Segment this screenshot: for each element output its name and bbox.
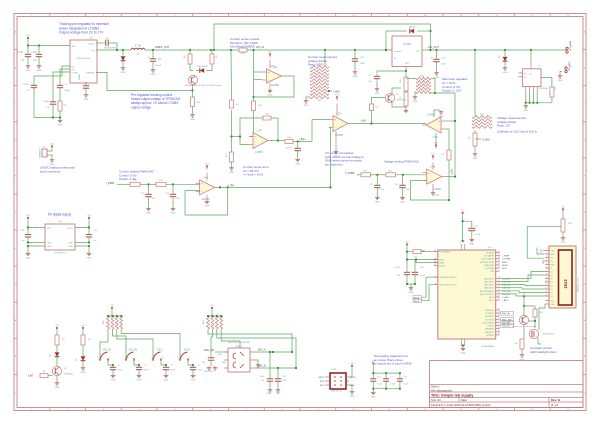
svg-text:GND: GND	[304, 105, 309, 107]
svg-text:set maximum: set maximum	[325, 162, 343, 166]
svg-text:1N5822/3W: 1N5822/3W	[104, 47, 116, 49]
svg-text:LM358: LM358	[271, 84, 279, 87]
svg-text:LED+: LED+	[551, 301, 556, 303]
svg-text:U7A: U7A	[433, 136, 438, 139]
svg-text:SMPS_OUT: SMPS_OUT	[155, 45, 170, 49]
svg-text:V_ADC: V_ADC	[502, 296, 510, 299]
svg-text:SB540: SB540	[409, 27, 416, 29]
svg-text:GND: GND	[84, 99, 89, 101]
svg-text:GND: GND	[503, 72, 508, 74]
svg-text:(ADC3)PC3: (ADC3)PC3	[484, 287, 494, 290]
svg-text:to supply pin of each LM358: to supply pin of each LM358	[374, 362, 412, 366]
svg-text:RST: RST	[320, 385, 325, 387]
svg-text:GND: GND	[121, 72, 126, 74]
svg-text:(ICP)PB?: (ICP)PB?	[486, 335, 494, 337]
svg-text:14: 14	[498, 257, 500, 259]
svg-text:2: 2	[190, 357, 191, 359]
svg-text:+: +	[334, 118, 336, 122]
svg-text:Voltage setting PWM DAC: Voltage setting PWM DAC	[384, 160, 420, 164]
svg-text:1: 1	[546, 249, 547, 251]
svg-text:4: 4	[546, 260, 547, 262]
svg-text:GND: GND	[520, 359, 525, 361]
svg-text:+: +	[148, 55, 150, 59]
svg-text:Rev: B: Rev: B	[551, 398, 560, 402]
svg-text:Size: A3: Size: A3	[431, 398, 441, 402]
svg-text:GND: GND	[47, 243, 52, 245]
svg-text:(MISO)PB4: (MISO)PB4	[485, 265, 495, 267]
svg-text:10uF: 10uF	[441, 64, 447, 66]
svg-text:I_Mon: I_Mon	[299, 139, 306, 141]
svg-text:GND: GND	[268, 95, 273, 97]
svg-text:5: 5	[546, 263, 547, 265]
svg-text:Id: 1/1: Id: 1/1	[551, 403, 559, 407]
svg-text:MISO: MISO	[502, 262, 508, 264]
svg-text:20: 20	[434, 261, 436, 263]
svg-text:COMP: COMP	[72, 73, 79, 75]
svg-text:12: 12	[545, 288, 547, 290]
svg-text:ENC_SW: ENC_SW	[204, 350, 215, 352]
svg-text:Ratio: 1/5: Ratio: 1/5	[497, 124, 510, 128]
svg-text:U7A: U7A	[273, 67, 278, 70]
svg-text:LIN_OUT: LIN_OUT	[428, 45, 439, 49]
svg-text:8: 8	[435, 283, 436, 285]
svg-text:10nF: 10nF	[217, 354, 222, 356]
svg-text:31: 31	[498, 311, 500, 313]
svg-text:GND: GND	[558, 80, 563, 82]
svg-text:GND: GND	[371, 397, 376, 399]
svg-text:GND: GND	[37, 70, 42, 72]
svg-text:tracking 2N3904 with SET of LT: tracking 2N3904 with SET of LT3083 trans…	[184, 84, 221, 87]
svg-text:VSENSE: VSENSE	[86, 73, 95, 75]
svg-text:D0: D0	[551, 272, 553, 274]
svg-text:0.1uF: 0.1uF	[395, 267, 401, 269]
svg-text:1: 1	[178, 357, 179, 359]
svg-text:10uF: 10uF	[259, 376, 264, 378]
svg-text:7: 7	[435, 275, 436, 277]
svg-text:27: 27	[498, 289, 500, 291]
svg-text:2: 2	[110, 357, 111, 359]
svg-text:GND: GND	[295, 164, 300, 166]
svg-text:+5V: +5V	[350, 363, 354, 365]
svg-text:GND: GND	[205, 206, 210, 208]
svg-text:+5V: +5V	[81, 325, 85, 327]
svg-text:16x2: 16x2	[563, 279, 568, 289]
svg-text:9: 9	[498, 324, 499, 326]
svg-text:+: +	[438, 119, 440, 123]
svg-text:GND: GND	[469, 244, 474, 246]
svg-text:SW_DS: SW_DS	[502, 326, 510, 328]
svg-text:GND: GND	[276, 393, 281, 395]
svg-text:(RXD)PD0: (RXD)PD0	[485, 310, 494, 312]
svg-text:D3: D3	[551, 282, 553, 284]
svg-text:9: 9	[546, 277, 547, 279]
svg-text:9: 9	[498, 270, 499, 272]
svg-text:+5V: +5V	[55, 325, 59, 327]
svg-text:GND: GND	[111, 380, 116, 382]
svg-text:2N2222A: 2N2222A	[397, 99, 406, 102]
svg-text:(TXD)PD1: (TXD)PD1	[485, 313, 494, 315]
svg-text:GND: GND	[350, 396, 355, 398]
svg-text:+5V: +5V	[561, 207, 565, 209]
svg-text:GND: GND	[461, 353, 466, 355]
svg-text:4.7uF: 4.7uF	[31, 52, 37, 54]
svg-text:-: -	[439, 127, 440, 131]
svg-text:10nF: 10nF	[118, 370, 123, 372]
svg-text:+: +	[431, 56, 433, 60]
svg-text:VCC: VCC	[26, 215, 31, 217]
svg-text:28: 28	[498, 292, 500, 294]
svg-text:output voltage: output voltage	[131, 105, 151, 109]
svg-text:GND: GND	[190, 119, 195, 121]
svg-text:12: 12	[498, 251, 500, 253]
svg-text:0.1uF: 0.1uF	[377, 384, 383, 386]
svg-text:15: 15	[498, 260, 500, 262]
svg-text:GND: GND	[353, 76, 358, 78]
svg-text:+: +	[268, 70, 270, 74]
svg-text:AVCC: AVCC	[439, 259, 445, 262]
svg-text:11: 11	[498, 330, 500, 332]
svg-text:EN: EN	[72, 67, 75, 69]
svg-text:VCC: VCC	[431, 154, 436, 156]
svg-text:I_Set: I_Set	[228, 184, 234, 187]
svg-text:VIN: VIN	[47, 228, 51, 230]
svg-text:GND: GND	[81, 372, 86, 374]
svg-text:V_PWM: V_PWM	[345, 172, 354, 175]
svg-text:ILIM: ILIM	[361, 120, 366, 123]
svg-text:150pF: 150pF	[64, 90, 71, 92]
svg-text:SW_MS: SW_MS	[129, 350, 138, 352]
svg-text:GND: GND	[561, 242, 566, 244]
svg-text:LED backlight driver: LED backlight driver	[530, 350, 557, 354]
svg-text:LM358: LM358	[433, 188, 441, 191]
svg-text:GND: GND	[87, 258, 92, 260]
svg-text:6.2nF: 6.2nF	[23, 84, 29, 86]
svg-text:+: +	[428, 171, 430, 175]
svg-text:D1: D1	[551, 275, 553, 277]
svg-text:(ADC1)PC1: (ADC1)PC1	[484, 281, 494, 284]
svg-text:Calibrate to 2.5V out at 15V i: Calibrate to 2.5V out at 15V in	[497, 130, 537, 134]
svg-text:+5V: +5V	[371, 361, 375, 363]
svg-text:File: elbsupply.sch: File: elbsupply.sch	[431, 388, 453, 392]
svg-text:POWER_IN: POWER_IN	[40, 147, 42, 158]
svg-text:GND: GND	[164, 380, 169, 382]
svg-text:SW_R: SW_R	[184, 350, 191, 352]
svg-text:Output: 0..15V: Output: 0..15V	[442, 89, 461, 93]
svg-text:GND: GND	[137, 380, 142, 382]
svg-text:(ADC4/SDA)PC4: (ADC4/SDA)PC4	[480, 290, 494, 293]
svg-text:V_ADC: V_ADC	[482, 139, 490, 142]
svg-text:1: 1	[498, 318, 499, 320]
svg-text:2: 2	[546, 253, 547, 255]
svg-text:+5V: +5V	[461, 210, 465, 212]
svg-text:17: 17	[498, 266, 500, 268]
svg-text:U7B: U7B	[257, 130, 262, 133]
svg-text:OUT_PWR: OUT_PWR	[570, 40, 572, 51]
svg-text:10nF: 10nF	[144, 370, 149, 372]
svg-text:LM358: LM358	[202, 198, 210, 201]
svg-text:26: 26	[498, 286, 500, 288]
svg-text:22nF: 22nF	[44, 101, 50, 103]
svg-text:LT3083: LT3083	[403, 43, 412, 46]
svg-text:1: 1	[98, 357, 99, 359]
svg-text:PB?: PB?	[491, 271, 495, 273]
svg-text:DISPLAY_16x2: DISPLAY_16x2	[577, 277, 580, 292]
svg-text:SCK: SCK	[502, 268, 507, 270]
svg-text:SW_L: SW_L	[157, 350, 164, 352]
svg-text:10: 10	[545, 281, 547, 283]
svg-text:GND: GND	[69, 246, 74, 248]
svg-text:4.7uH: 4.7uH	[135, 46, 141, 48]
svg-text:GND: GND	[26, 258, 31, 260]
svg-text:AREF: AREF	[439, 262, 445, 265]
svg-text:22: 22	[498, 298, 500, 300]
svg-text:-: -	[428, 179, 429, 183]
svg-text:I_Set: I_Set	[451, 169, 454, 175]
svg-text:10nF: 10nF	[198, 370, 203, 372]
svg-text:0.1uF: 0.1uF	[404, 384, 410, 386]
svg-text:GND: GND	[523, 110, 528, 112]
svg-text:-: -	[201, 190, 202, 194]
svg-text:ENC_A: ENC_A	[502, 312, 510, 315]
svg-text:-: -	[268, 78, 269, 82]
svg-text:(XCK/T0)PD4: (XCK/T0)PD4	[483, 322, 495, 324]
svg-text:4.7uF: 4.7uF	[17, 52, 23, 54]
svg-text:-: -	[335, 126, 336, 130]
svg-text:GND: GND	[47, 246, 52, 248]
svg-text:PB6(XTAL1/TOSC1): PB6(XTAL1/TOSC1)	[439, 276, 457, 279]
svg-text:+: +	[201, 182, 203, 186]
svg-text:GND: GND	[375, 202, 380, 204]
svg-text:I_ADC: I_ADC	[333, 91, 341, 94]
svg-text:GND: GND	[439, 116, 444, 118]
svg-text:PC6(RESET): PC6(RESET)	[439, 252, 451, 254]
svg-text:GND: GND	[400, 202, 405, 204]
svg-text:AGND: AGND	[439, 265, 445, 268]
svg-text:GND: GND	[435, 195, 440, 197]
svg-text:I_PWM: I_PWM	[502, 256, 510, 258]
svg-text:+5V: +5V	[522, 294, 526, 296]
svg-text:220uF: 220uF	[155, 65, 162, 67]
svg-text:=> Vout = 1V/A: => Vout = 1V/A	[243, 173, 263, 177]
svg-text:G: G	[15, 248, 17, 250]
svg-text:SW_MS: SW_MS	[502, 322, 511, 324]
svg-text:+5V: +5V	[210, 305, 214, 307]
svg-text:input connector: input connector	[40, 169, 61, 173]
svg-text:GND: GND	[229, 172, 234, 174]
svg-text:LM35DA: LM35DA	[539, 87, 548, 90]
svg-text:R/W: R/W	[551, 265, 555, 267]
svg-text:(MOSI/OC2)PB3: (MOSI/OC2)PB3	[480, 262, 494, 264]
svg-text:PB7(XTAL2/TOSC2): PB7(XTAL2/TOSC2)	[439, 284, 457, 287]
svg-text:(ADC5/SCL)PC5: (ADC5/SCL)PC5	[480, 293, 494, 296]
svg-text:VCC: VCC	[50, 144, 55, 146]
svg-text:TPS54331dda: TPS54331dda	[76, 58, 91, 60]
svg-text:SW_DS: SW_DS	[103, 350, 112, 352]
svg-text:GND: GND	[26, 70, 31, 72]
svg-text:VCC: VCC	[26, 35, 31, 37]
svg-text:(ICP)PB0: (ICP)PB0	[486, 253, 494, 255]
svg-text:GND: GND	[55, 387, 60, 389]
svg-text:IRLML6402: IRLML6402	[543, 334, 555, 336]
svg-text:+: +	[254, 135, 256, 139]
svg-text:D6: D6	[551, 293, 553, 295]
svg-text:D7: D7	[551, 296, 553, 298]
svg-text:VCC: VCC	[335, 95, 340, 97]
svg-text:29: 29	[434, 250, 436, 252]
svg-text:ILIM: ILIM	[28, 375, 33, 378]
svg-text:A06-ISP-6: A06-ISP-6	[331, 390, 342, 393]
svg-text:6: 6	[546, 267, 547, 269]
svg-text:-: -	[255, 143, 256, 147]
svg-text:U4A: U4A	[203, 176, 208, 179]
svg-text:2: 2	[498, 321, 499, 323]
svg-text:GND: GND	[413, 101, 418, 103]
svg-text:MOSI: MOSI	[502, 265, 508, 267]
svg-text:Output voltage from 2V to 17V: Output voltage from 2V to 17V	[59, 31, 104, 35]
svg-text:Sheet: /: Sheet: /	[431, 385, 440, 389]
svg-text:PWRD: PWRD	[79, 73, 81, 80]
svg-text:OUT_SNS: OUT_SNS	[569, 61, 571, 71]
svg-text:GND: GND	[58, 125, 63, 127]
svg-text:(SS/OC1B)PB2: (SS/OC1B)PB2	[481, 259, 494, 261]
svg-text:(AIN1)PD7: (AIN1)PD7	[485, 331, 494, 334]
svg-text:21: 21	[434, 264, 436, 266]
svg-text:(SCK)PB5: (SCK)PB5	[485, 268, 494, 270]
svg-text:ATMEGA8-A: ATMEGA8-A	[481, 345, 494, 348]
svg-text:GND GND: GND GND	[203, 371, 213, 373]
svg-text:+5V: +5V	[110, 305, 114, 307]
svg-text:(INT0)PD2: (INT0)PD2	[485, 316, 494, 318]
svg-text:TS-78L05CS: TS-78L05CS	[54, 253, 67, 255]
svg-text:Vcontrol: Vcontrol	[394, 50, 402, 53]
svg-text:LM358: LM358	[255, 151, 263, 154]
svg-text:23: 23	[498, 277, 500, 279]
svg-text:ENC_SW: ENC_SW	[502, 319, 512, 321]
svg-text:SCK: SCK	[320, 381, 325, 383]
svg-text:7: 7	[546, 270, 547, 272]
svg-text:11: 11	[545, 284, 547, 286]
svg-text:10nF: 10nF	[171, 370, 176, 372]
svg-text:(T1)PD5: (T1)PD5	[487, 326, 494, 328]
svg-text:PH: PH	[92, 51, 95, 53]
svg-text:Date:: Date:	[461, 398, 467, 402]
svg-text:GND: GND	[541, 248, 543, 253]
svg-text:14: 14	[545, 295, 547, 297]
svg-text:VCC: VCC	[268, 52, 273, 54]
svg-text:0.1uF: 0.1uF	[390, 384, 396, 386]
svg-text:D5: D5	[551, 289, 553, 291]
svg-text:D2: D2	[551, 279, 553, 281]
svg-text:24: 24	[498, 280, 500, 282]
svg-text:KiCad E.D.A. kicad (2015-04-1: KiCad E.D.A. kicad (2015-04-10 BZR 5591)…	[431, 403, 491, 407]
svg-text:ENC_A: ENC_A	[258, 349, 266, 352]
svg-text:0.1uF: 0.1uF	[475, 234, 481, 236]
svg-text:GND: GND	[267, 393, 272, 395]
svg-text:0.1uF: 0.1uF	[420, 275, 426, 277]
svg-text:GND: GND	[151, 74, 156, 76]
svg-text:GND: GND	[191, 380, 196, 382]
svg-text:GND: GND	[375, 93, 380, 95]
svg-text:1: 1	[124, 357, 125, 359]
svg-text:U?A: U?A	[337, 113, 342, 116]
svg-text:5V digital supply: 5V digital supply	[48, 213, 72, 217]
svg-text:ENC_B: ENC_B	[258, 366, 266, 368]
svg-text:VIN: VIN	[72, 46, 76, 48]
svg-text:13: 13	[498, 254, 500, 256]
svg-text:30: 30	[498, 308, 500, 310]
svg-text:G: G	[584, 248, 586, 250]
svg-text:GND: GND	[69, 243, 74, 245]
svg-text:1uF: 1uF	[368, 81, 372, 83]
svg-text:(INT1)PD3: (INT1)PD3	[485, 319, 494, 321]
svg-text:ALPS-EC11E09244B: ALPS-EC11E09244B	[229, 341, 250, 344]
svg-text:(OC1A)PB1: (OC1A)PB1	[484, 255, 494, 258]
svg-text:ADC7: ADC7	[489, 299, 494, 302]
svg-text:10uF: 10uF	[360, 63, 366, 65]
svg-text:VOUT: VOUT	[67, 228, 74, 230]
svg-text:GND: GND	[222, 362, 227, 364]
svg-text:8: 8	[546, 274, 547, 276]
svg-text:LM358: LM358	[335, 134, 343, 137]
svg-text:(AIN0)PD6: (AIN0)PD6	[485, 328, 494, 331]
svg-text:constant current LED backlight: constant current LED backlight	[512, 325, 537, 328]
svg-text:+5V: +5V	[405, 242, 409, 244]
svg-text:10: 10	[498, 327, 500, 329]
svg-text:19: 19	[498, 295, 500, 297]
svg-text:BOOT: BOOT	[89, 44, 96, 46]
svg-text:0.1uF: 0.1uF	[286, 148, 292, 150]
svg-text:2: 2	[136, 357, 137, 359]
svg-text:16: 16	[498, 263, 500, 265]
svg-text:LED-: LED-	[551, 304, 555, 306]
svg-text:D4: D4	[551, 286, 553, 288]
svg-text:I_ADC: I_ADC	[502, 299, 509, 302]
svg-text:GND: GND	[171, 213, 176, 215]
svg-text:CON1: CON1	[330, 369, 337, 371]
svg-text:VCC: VCC	[205, 164, 210, 166]
svg-text:ADC6: ADC6	[489, 296, 494, 299]
svg-text:MISO: MISO	[319, 377, 325, 379]
svg-text:+5V: +5V	[87, 215, 91, 217]
svg-text:GND: GND	[146, 213, 151, 215]
svg-text:V_PWM: V_PWM	[502, 259, 510, 261]
svg-text:1: 1	[151, 357, 152, 359]
svg-text:GND: GND	[473, 158, 478, 160]
svg-text:10uF: 10uF	[282, 380, 287, 382]
svg-text:13: 13	[545, 291, 547, 293]
svg-text:UNKNOWN: UNKNOWN	[197, 66, 208, 68]
svg-text:LIN_IN: LIN_IN	[256, 45, 264, 49]
svg-text:18: 18	[434, 258, 436, 260]
svg-text:25: 25	[498, 283, 500, 285]
svg-text:Title: Simple lab supply: Title: Simple lab supply	[431, 394, 474, 398]
svg-text:(ADC0)PC0: (ADC0)PC0	[484, 277, 494, 280]
svg-text:2: 2	[163, 357, 164, 359]
svg-text:I_PWM: I_PWM	[106, 182, 115, 185]
svg-text:(ADC2)PC2: (ADC2)PC2	[484, 284, 494, 287]
svg-text:2N3904A: 2N3904A	[64, 373, 73, 376]
svg-text:3: 3	[546, 256, 547, 258]
svg-text:GND: GND	[409, 292, 414, 294]
svg-text:32: 32	[498, 315, 500, 317]
svg-text:12: 12	[498, 333, 500, 335]
